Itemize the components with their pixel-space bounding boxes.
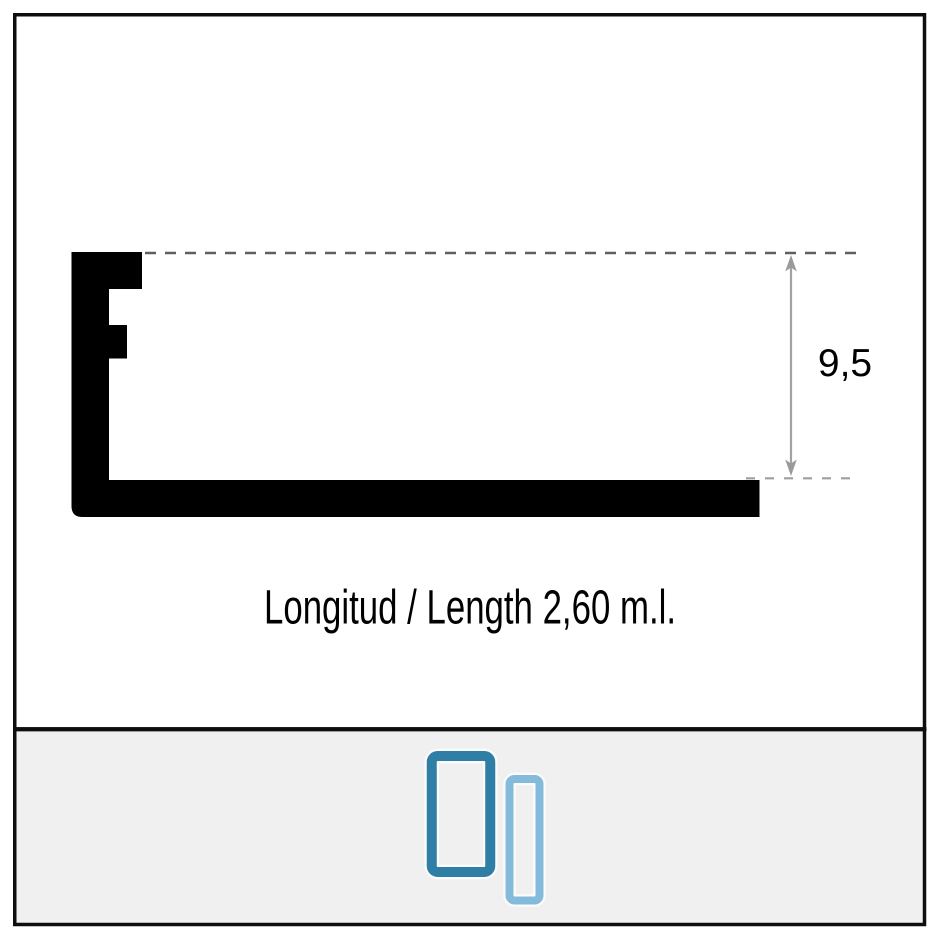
svg-text:Longitud / Length 2,60 m.l.: Longitud / Length 2,60 m.l. bbox=[264, 582, 676, 635]
svg-text:9,5: 9,5 bbox=[818, 342, 872, 385]
